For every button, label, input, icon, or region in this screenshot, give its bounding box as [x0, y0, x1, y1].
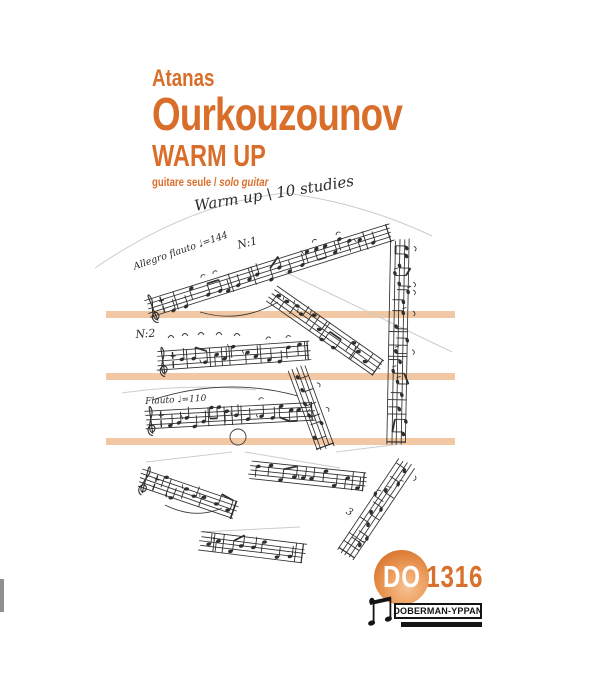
author-last-name: Ourkouzounov [152, 91, 402, 137]
staff [155, 334, 312, 377]
publisher-notes-icon [366, 595, 396, 631]
instrumentation-subtitle: guitare seule / solo guitar [152, 176, 268, 188]
publisher-underline-bar [401, 622, 482, 627]
staff [265, 284, 387, 378]
publisher-name: DOBERMAN-YPPAN [393, 606, 482, 617]
subtitle-separator: / [211, 175, 219, 189]
work-title: WARM UP [152, 140, 266, 171]
staff [142, 216, 397, 324]
catalog-code: DO 1316 [383, 561, 483, 592]
score-cover: Warm up \ 10 studiesN:1Allegro flauto ♩=… [0, 0, 600, 685]
scan-edge-smudge [0, 579, 4, 612]
catalog-number: 1316 [426, 561, 483, 592]
subtitle-english: solo guitar [219, 175, 268, 189]
staff-systems [134, 216, 421, 564]
handwritten-label: N:2 [135, 327, 156, 341]
staff [134, 465, 241, 526]
subtitle-french: guitare seule [152, 175, 211, 189]
catalog-prefix: DO [383, 561, 421, 592]
staff [248, 460, 368, 491]
staff [198, 530, 307, 563]
publisher-box: DOBERMAN-YPPAN [394, 603, 482, 619]
staff [387, 238, 417, 445]
staff [287, 362, 341, 453]
